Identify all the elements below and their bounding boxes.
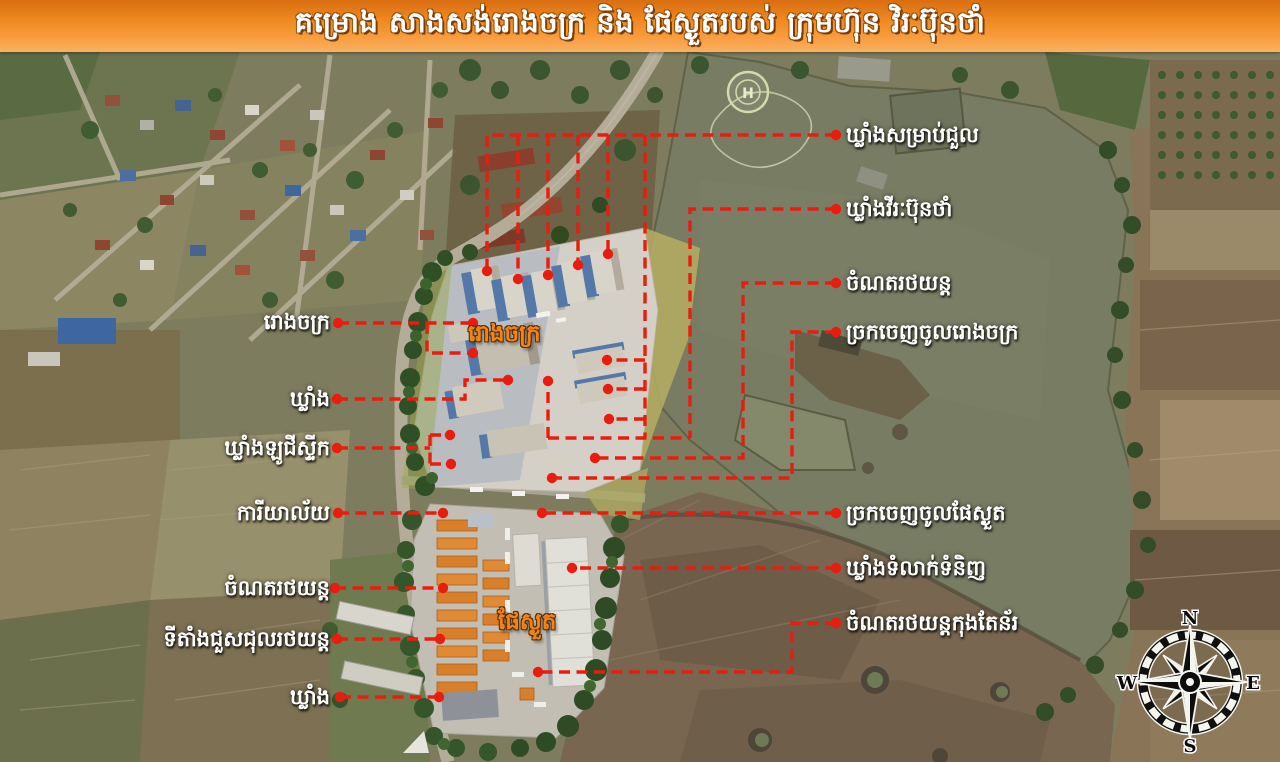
title-banner: គម្រោង សាងសង់រោងចក្រ និង ផែស្ងួតរបស់ ក្រ…: [0, 0, 1280, 52]
label-warehouse-for-rent: ឃ្លាំងសម្រាប់ជួល: [846, 120, 979, 150]
label-unloading-warehouse: ឃ្លាំងទំលាក់ទំនិញ: [846, 553, 986, 583]
site-plan-infographic: H: [0, 0, 1280, 762]
label-warehouse: ឃ្លាំង: [290, 384, 330, 414]
label-dryport-gate: ច្រកចេញចូលផែស្ងួត: [846, 498, 1006, 528]
map-label-factory: រោងចក្រ: [468, 320, 541, 353]
annotation-dots: [330, 130, 841, 702]
label-warehouse-bottom: ឃ្លាំង: [290, 682, 330, 712]
label-vireakbuntham-warehouse: ឃ្លាំងវីរៈប៊ុនថាំ: [846, 194, 952, 224]
label-factory-gate: ច្រកចេញចូលរោងចក្រ: [846, 317, 1018, 347]
label-vehicle-repair: ទីតាំងជួសជុលរថយន្ត: [163, 624, 330, 654]
page-title: គម្រោង សាងសង់រោងចក្រ និង ផែស្ងួតរបស់ ក្រ…: [295, 5, 986, 47]
label-office: ការីយាល័យ: [237, 498, 330, 528]
map-label-dry-port: ផែស្ងួត: [498, 608, 556, 641]
label-factory: រោងចក្រ: [264, 307, 330, 337]
label-container-parking: ចំណតរថយន្តកុងតែន័រ: [846, 608, 1018, 638]
label-car-parking-right: ចំណតរថយន្ត: [846, 268, 952, 298]
label-car-parking-left: ចំណតរថយន្ត: [224, 573, 330, 603]
label-logistics-warehouse: ឃ្លាំងឡូជីស្ទីក: [224, 433, 330, 463]
